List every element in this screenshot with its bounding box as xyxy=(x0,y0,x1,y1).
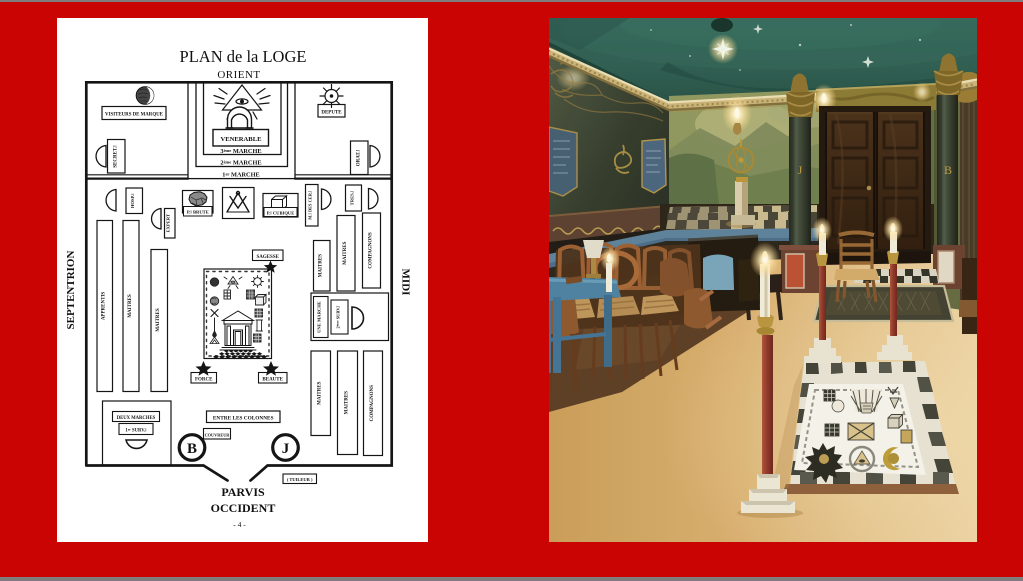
svg-text:MIDI: MIDI xyxy=(400,269,412,296)
svg-text:VENERABLE: VENERABLE xyxy=(220,136,262,143)
svg-text:MAITRES: MAITRES xyxy=(128,294,133,318)
svg-text:TRES.⁝: TRES.⁝ xyxy=(350,190,355,205)
svg-text:COUVREUR: COUVREUR xyxy=(205,432,231,437)
svg-text:COMPAGNONS: COMPAGNONS xyxy=(370,385,375,422)
svg-text:M.⁝ DES CER.⁝: M.⁝ DES CER.⁝ xyxy=(308,191,313,220)
svg-text:SECRET.⁝: SECRET.⁝ xyxy=(113,145,119,168)
svg-text:MAITRES: MAITRES xyxy=(319,254,324,278)
svg-text:ENTRE LES COLONNES: ENTRE LES COLONNES xyxy=(213,416,274,422)
svg-text:MAITRES: MAITRES xyxy=(318,381,323,405)
svg-text:ORAT.⁝: ORAT.⁝ xyxy=(356,149,362,166)
svg-text:MAITRES: MAITRES xyxy=(345,391,350,415)
svg-text:3ème MARCHE: 3ème MARCHE xyxy=(220,147,261,155)
svg-text:1er SURV.⁝: 1er SURV.⁝ xyxy=(125,427,147,433)
svg-text:SEPTENTRION: SEPTENTRION xyxy=(65,251,77,330)
svg-text:PLAN de la LOGE: PLAN de la LOGE xyxy=(180,47,307,66)
svg-text:P.⁝ BRUTE: P.⁝ BRUTE xyxy=(187,210,209,215)
svg-text:DEUX MARCHES: DEUX MARCHES xyxy=(117,416,156,421)
svg-text:J: J xyxy=(282,441,290,457)
svg-text:APPRENTIS: APPRENTIS xyxy=(102,292,107,321)
svg-text:FORCE: FORCE xyxy=(195,377,213,382)
svg-text:SAGESSE: SAGESSE xyxy=(256,255,279,260)
svg-text:MAITRES: MAITRES xyxy=(156,308,161,332)
svg-text:BEAUTE: BEAUTE xyxy=(262,377,283,382)
svg-text:PARVIS: PARVIS xyxy=(221,485,265,499)
svg-text:B: B xyxy=(187,441,197,457)
svg-text:EXPERT: EXPERT xyxy=(166,214,171,232)
svg-text:DEPUTE: DEPUTE xyxy=(321,111,342,116)
svg-text:COMPAGNONS: COMPAGNONS xyxy=(369,232,374,269)
svg-text:MAITRES: MAITRES xyxy=(343,241,348,265)
svg-text:( TUILEUR ): ( TUILEUR ) xyxy=(287,477,313,482)
svg-text:UNE MARCHE: UNE MARCHE xyxy=(317,301,322,333)
svg-text:2ème SURV.⁝: 2ème SURV.⁝ xyxy=(336,306,341,329)
svg-text:2ème MARCHE: 2ème MARCHE xyxy=(220,159,261,167)
svg-text:HOSP.⁝: HOSP.⁝ xyxy=(130,193,135,208)
svg-text:P.⁝ CUBIQUE: P.⁝ CUBIQUE xyxy=(267,210,295,215)
svg-text:1er MARCHE: 1er MARCHE xyxy=(222,171,259,179)
svg-text:VISITEURS DE MARQUE: VISITEURS DE MARQUE xyxy=(105,113,164,118)
svg-text:OCCIDENT: OCCIDENT xyxy=(211,501,276,515)
svg-text:ORIENT: ORIENT xyxy=(217,69,260,81)
svg-text:- 4 -: - 4 - xyxy=(233,520,246,529)
